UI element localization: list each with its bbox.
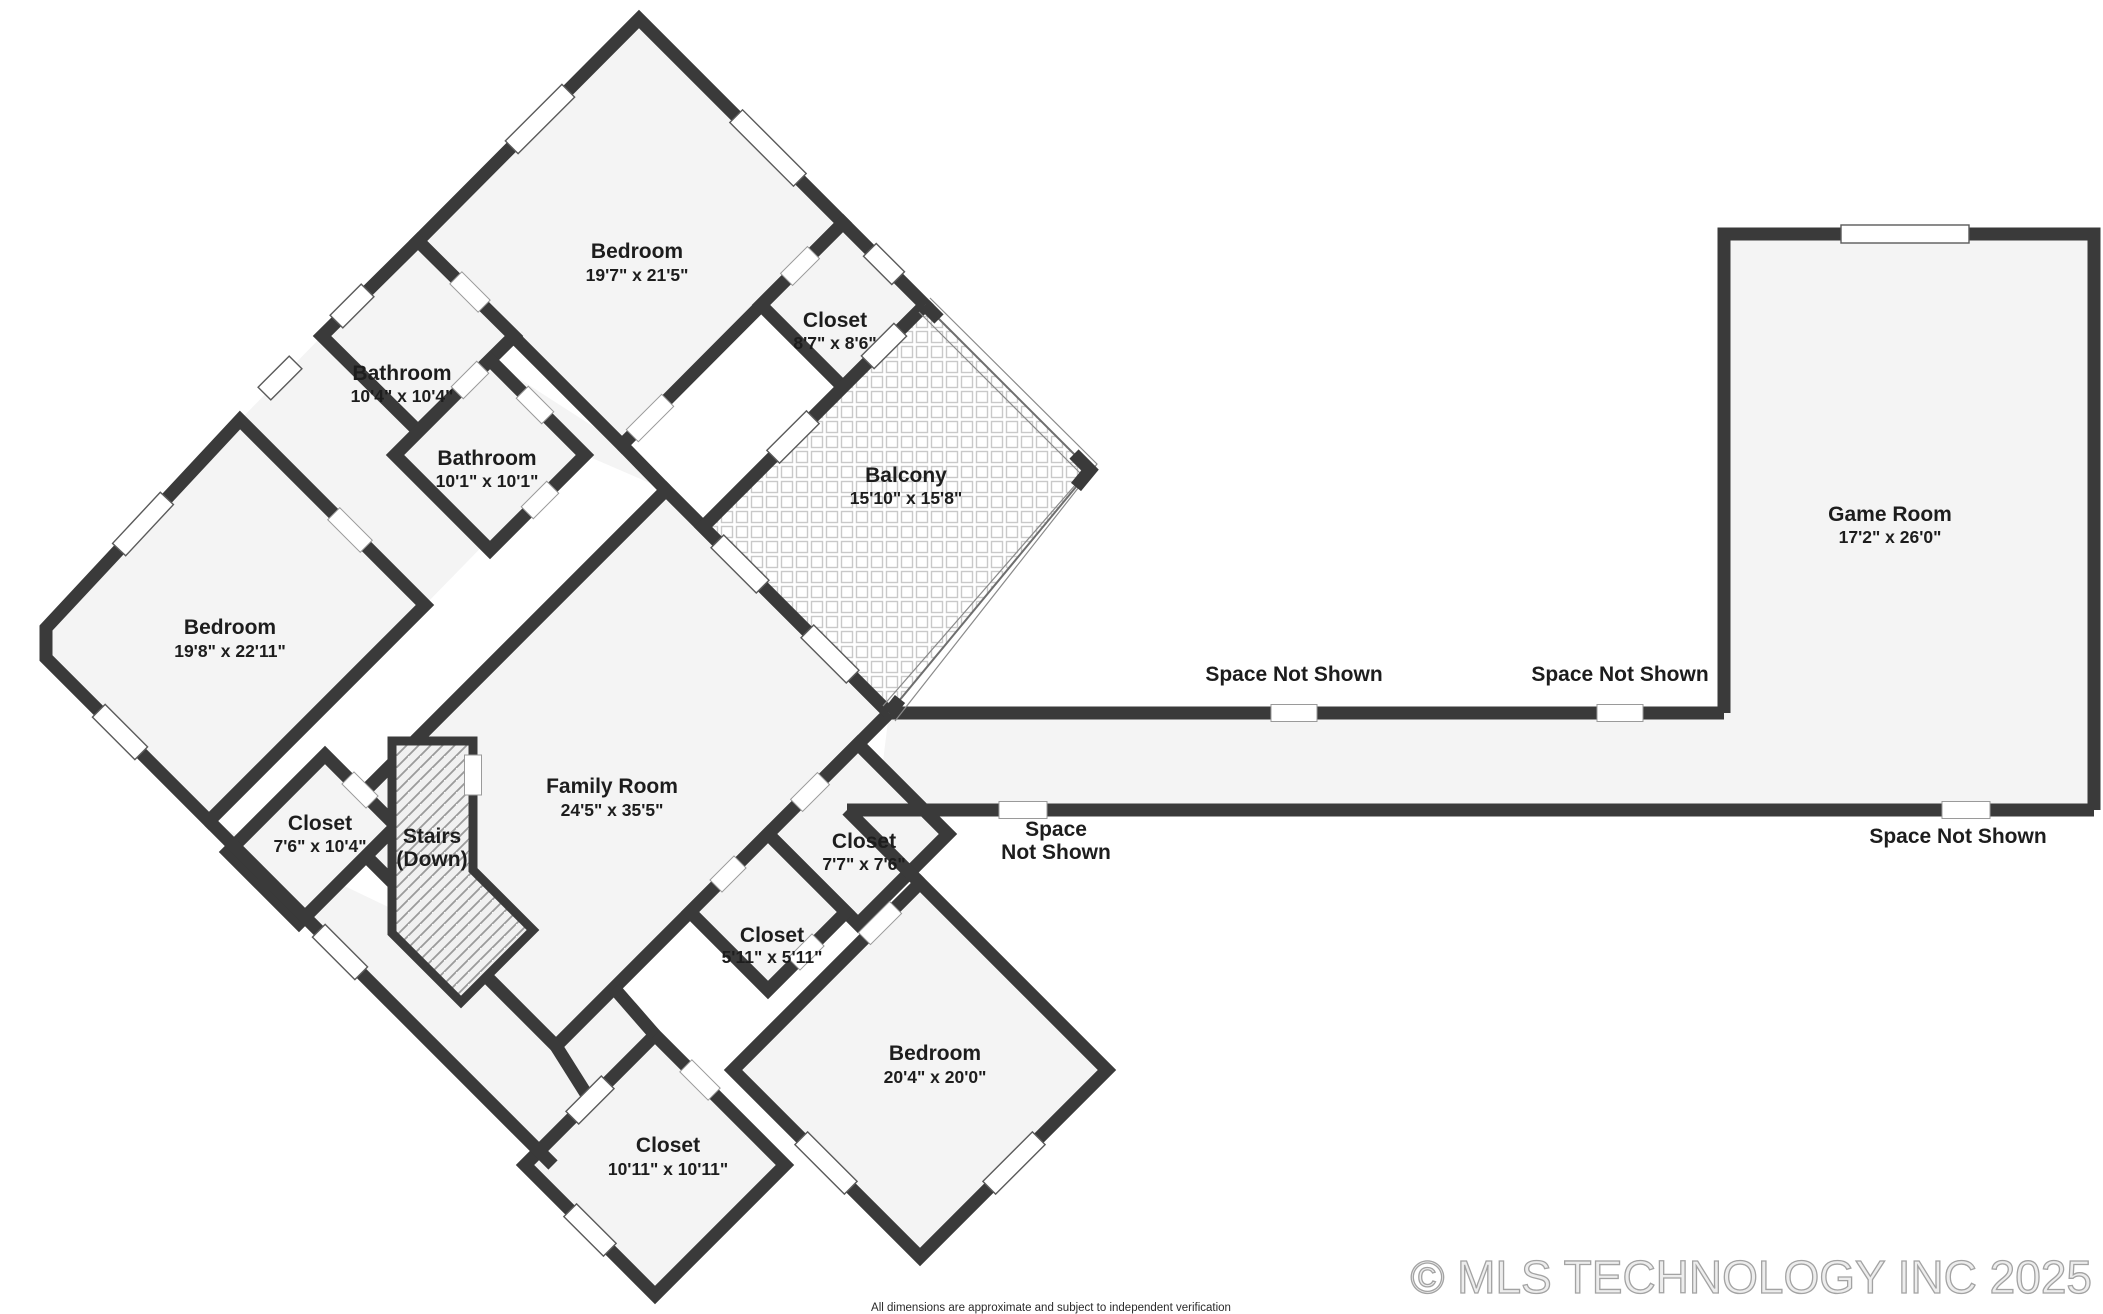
- label-bedroom-left-dims: 19'8" x 22'11": [174, 641, 286, 661]
- label-balcony-dims: 15'10" x 15'8": [850, 488, 963, 508]
- label-family-room-dims: 24'5" x 35'5": [561, 800, 664, 820]
- space-not-shown-2: Space Not Shown: [1531, 663, 1708, 686]
- wall-gap: [1597, 705, 1643, 722]
- label-bathroom-2-name: Bathroom: [437, 447, 536, 470]
- disclaimer-text: All dimensions are approximate and subje…: [871, 1302, 1231, 1314]
- label-bedroom-left-name: Bedroom: [184, 616, 276, 639]
- label-closet-top-name: Closet: [803, 309, 867, 332]
- label-closet-left-name: Closet: [288, 812, 352, 835]
- label-balcony-name: Balcony: [865, 464, 947, 487]
- floor-plan-page: Bedroom 19'7" x 21'5" Closet 8'7" x 8'6"…: [0, 0, 2103, 1314]
- label-stairs-down: (Down): [396, 848, 467, 871]
- space-not-shown-4: Space Not Shown: [1869, 825, 2046, 848]
- door-gap: [465, 755, 482, 795]
- label-closet-top-dims: 8'7" x 8'6": [793, 333, 876, 353]
- label-closet-mid-name: Closet: [832, 830, 896, 853]
- footer: © MLS TECHNOLOGY INC 2025 All dimensions…: [871, 1251, 2092, 1314]
- label-game-room-dims: 17'2" x 26'0": [1839, 527, 1942, 547]
- label-stairs-name: Stairs: [403, 825, 461, 848]
- label-closet-mid-dims: 7'7" x 7'6": [822, 854, 905, 874]
- wall-gap: [1271, 705, 1317, 722]
- space-not-shown-3-line2: Not Shown: [1001, 841, 1111, 864]
- floor-plan-svg: Bedroom 19'7" x 21'5" Closet 8'7" x 8'6"…: [0, 0, 2103, 1314]
- copyright-text: © MLS TECHNOLOGY INC 2025: [1410, 1251, 2092, 1303]
- label-bathroom-1-dims: 10'4" x 10'4": [351, 386, 454, 406]
- label-bedroom-top-dims: 19'7" x 21'5": [586, 265, 689, 285]
- label-bedroom-bottom-dims: 20'4" x 20'0": [884, 1067, 987, 1087]
- corridor-floor: [877, 713, 1724, 810]
- wall-gap: [1942, 802, 1990, 819]
- space-not-shown-3-line1: Space: [1025, 818, 1087, 841]
- label-bedroom-top-name: Bedroom: [591, 240, 683, 263]
- label-game-room-name: Game Room: [1828, 503, 1952, 526]
- label-closet-bottom-name: Closet: [636, 1134, 700, 1157]
- label-closet-small-name: Closet: [740, 924, 804, 947]
- label-bathroom-1-name: Bathroom: [352, 362, 451, 385]
- wall-gap: [999, 802, 1047, 819]
- window: [1841, 225, 1969, 243]
- label-bedroom-bottom-name: Bedroom: [889, 1042, 981, 1065]
- label-closet-left-dims: 7'6" x 10'4": [273, 836, 366, 856]
- label-family-room-name: Family Room: [546, 775, 678, 798]
- label-closet-small-dims: 5'11" x 5'11": [722, 947, 823, 967]
- label-closet-bottom-dims: 10'11" x 10'11": [608, 1159, 728, 1179]
- space-not-shown-1: Space Not Shown: [1205, 663, 1382, 686]
- label-bathroom-2-dims: 10'1" x 10'1": [436, 471, 539, 491]
